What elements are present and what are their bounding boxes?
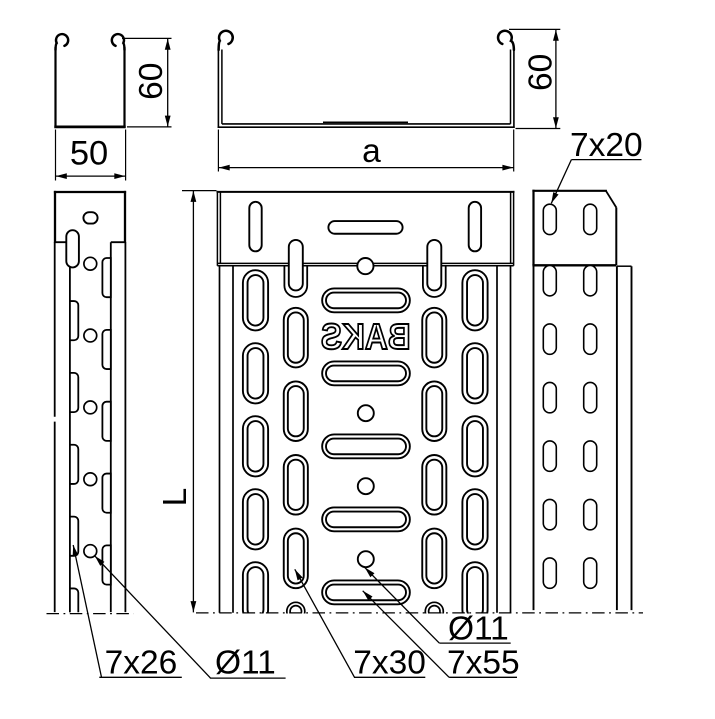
svg-text:7x55: 7x55 [447, 645, 520, 682]
svg-text:7x26: 7x26 [105, 645, 178, 682]
svg-text:7x30: 7x30 [353, 645, 426, 682]
svg-text:Ø11: Ø11 [448, 611, 509, 648]
svg-text:50: 50 [70, 135, 108, 173]
svg-text:L: L [157, 488, 194, 507]
svg-text:7x20: 7x20 [570, 127, 643, 164]
svg-text:BAKS: BAKS [321, 317, 411, 357]
svg-text:60: 60 [133, 63, 170, 100]
svg-text:a: a [362, 133, 381, 170]
svg-text:60: 60 [523, 54, 560, 91]
svg-text:Ø11: Ø11 [215, 645, 276, 682]
